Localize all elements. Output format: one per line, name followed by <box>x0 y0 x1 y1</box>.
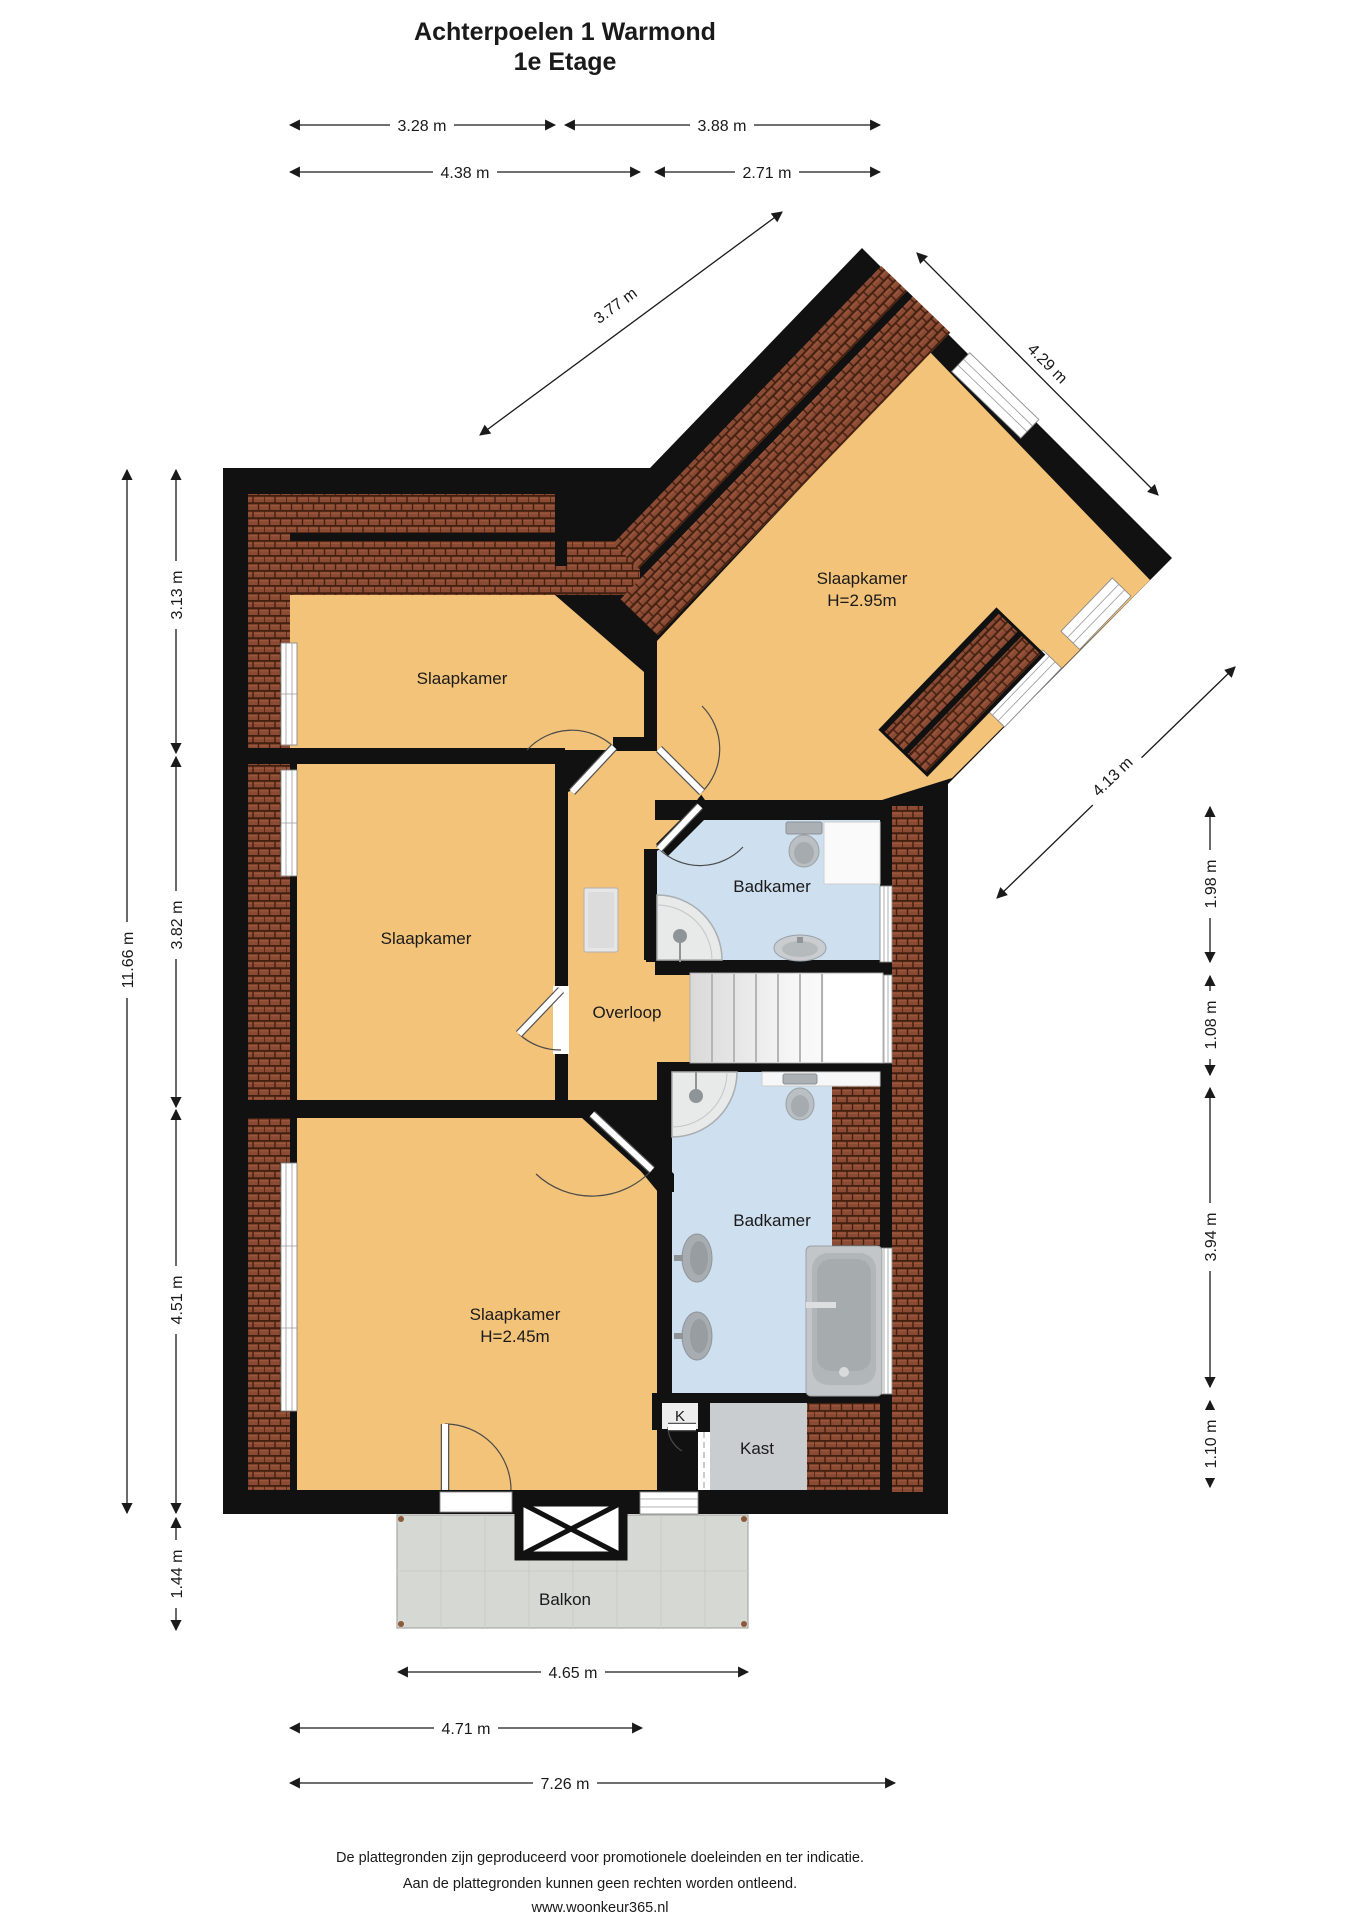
svg-text:4.38 m: 4.38 m <box>441 165 490 182</box>
svg-text:4.51 m: 4.51 m <box>169 1276 186 1325</box>
dimension-left-seg3: 4.51 m <box>165 1110 187 1513</box>
window-slaapkamer-sw <box>281 1163 297 1411</box>
label-balkon: Balkon <box>539 1590 591 1609</box>
label-slaapkamer-ne-height: H=2.95m <box>827 591 896 610</box>
label-slaapkamer-ne: Slaapkamer <box>817 569 908 588</box>
label-slaapkamer-sw-height: H=2.45m <box>480 1327 549 1346</box>
dimension-right-seg2: 1.08 m <box>1199 976 1221 1075</box>
room-slaapkamer-sw <box>297 1118 657 1490</box>
window-slaapkamer-nw <box>281 643 297 745</box>
label-k-closet: K <box>675 1408 685 1425</box>
label-slaapkamer-sw: Slaapkamer <box>470 1305 561 1324</box>
dimension-left-seg2: 3.82 m <box>165 757 187 1107</box>
roof-tile-strip-kast <box>807 1403 880 1490</box>
dimension-bottom-balkon: 4.65 m <box>398 1661 748 1683</box>
window-slaapkamer-w <box>281 770 297 876</box>
page-subtitle: 1e Etage <box>514 48 617 76</box>
floorplan-canvas: Slaapkamer Slaapkamer H=2.95m Slaapkamer… <box>0 0 1358 1920</box>
window-badkamer-boven <box>880 886 892 962</box>
balkon-hatch-icon <box>519 1502 623 1556</box>
dimension-top-inner-right: 3.88 m <box>565 114 880 136</box>
dimension-left-total: 11.66 m <box>116 470 138 1513</box>
page-title: Achterpoelen 1 Warmond <box>414 18 716 46</box>
svg-text:1.08 m: 1.08 m <box>1203 1001 1220 1050</box>
svg-text:1.10 m: 1.10 m <box>1203 1420 1220 1469</box>
stairs <box>690 973 883 1063</box>
dimension-left-balkon: 1.44 m <box>165 1518 187 1630</box>
svg-text:11.66 m: 11.66 m <box>120 932 137 989</box>
toilet-icon-2 <box>783 1074 817 1120</box>
svg-text:1.98 m: 1.98 m <box>1203 860 1220 909</box>
dimension-left-seg1: 3.13 m <box>165 470 187 753</box>
dimension-bottom-inner: 4.71 m <box>290 1717 642 1739</box>
label-badkamer-onder: Badkamer <box>733 1211 811 1230</box>
dimension-top-outer-right: 2.71 m <box>655 161 880 183</box>
roof-tile-strip-badkamer <box>832 1072 880 1246</box>
footer-disclaimer-2: Aan de plattegronden kunnen geen rechten… <box>403 1876 797 1892</box>
footer-website: www.woonkeur365.nl <box>530 1900 668 1916</box>
svg-text:4.71 m: 4.71 m <box>442 1721 491 1738</box>
label-overloop: Overloop <box>593 1003 662 1022</box>
svg-text:1.44 m: 1.44 m <box>169 1550 186 1599</box>
dimension-top-inner-left: 3.28 m <box>290 114 555 136</box>
shelf-icon <box>762 1072 880 1086</box>
svg-text:3.28 m: 3.28 m <box>398 118 447 135</box>
footer-disclaimer-1: De plattegronden zijn geproduceerd voor … <box>336 1850 864 1866</box>
toilet-icon <box>786 822 822 867</box>
dimension-right-seg3: 3.94 m <box>1199 1088 1221 1387</box>
bathtub-icon <box>806 1246 882 1396</box>
svg-text:3.94 m: 3.94 m <box>1203 1213 1220 1262</box>
window-bottom <box>640 1492 698 1514</box>
svg-text:2.71 m: 2.71 m <box>743 165 792 182</box>
svg-text:7.26 m: 7.26 m <box>541 1776 590 1793</box>
label-slaapkamer-nw: Slaapkamer <box>417 669 508 688</box>
svg-text:3.13 m: 3.13 m <box>169 571 186 620</box>
label-slaapkamer-w: Slaapkamer <box>381 929 472 948</box>
svg-text:3.88 m: 3.88 m <box>698 118 747 135</box>
svg-text:4.65 m: 4.65 m <box>549 1665 598 1682</box>
dimension-right-seg1: 1.98 m <box>1199 807 1221 962</box>
dimension-bottom-total: 7.26 m <box>290 1772 895 1794</box>
label-badkamer-boven: Badkamer <box>733 877 811 896</box>
door-kast <box>698 1432 710 1490</box>
label-kast: Kast <box>740 1439 774 1458</box>
svg-text:3.82 m: 3.82 m <box>169 901 186 950</box>
dimension-top-outer-left: 4.38 m <box>290 161 640 183</box>
dimension-right-seg4: 1.10 m <box>1199 1401 1221 1487</box>
floorplan-page: Slaapkamer Slaapkamer H=2.95m Slaapkamer… <box>0 0 1358 1920</box>
cabinet-icon <box>824 822 880 884</box>
balcony-door-opening <box>440 1492 512 1512</box>
overloop-box-icon <box>584 888 618 952</box>
sink-icon <box>774 935 826 961</box>
